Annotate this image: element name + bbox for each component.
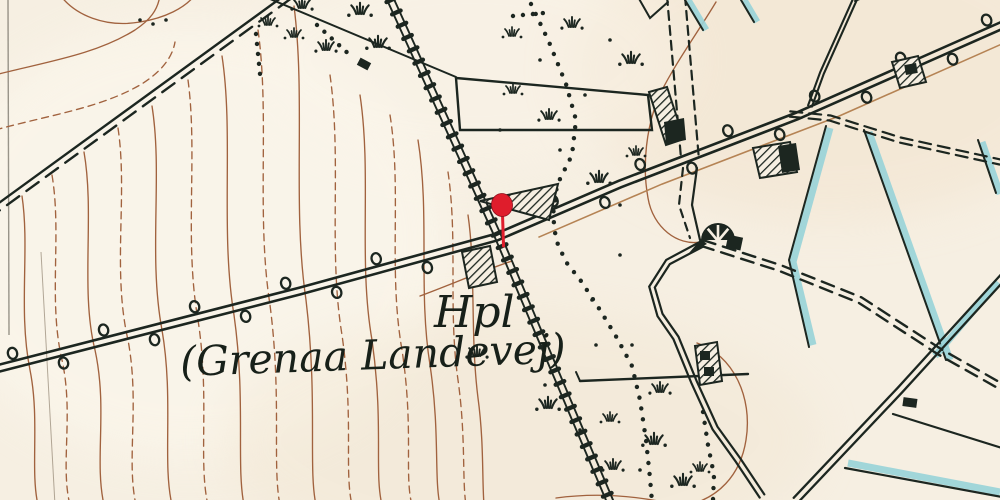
map-canvas: Hpl (Grenaa Landevej): [0, 0, 1000, 500]
historical-map: Hpl (Grenaa Landevej): [0, 0, 1000, 500]
